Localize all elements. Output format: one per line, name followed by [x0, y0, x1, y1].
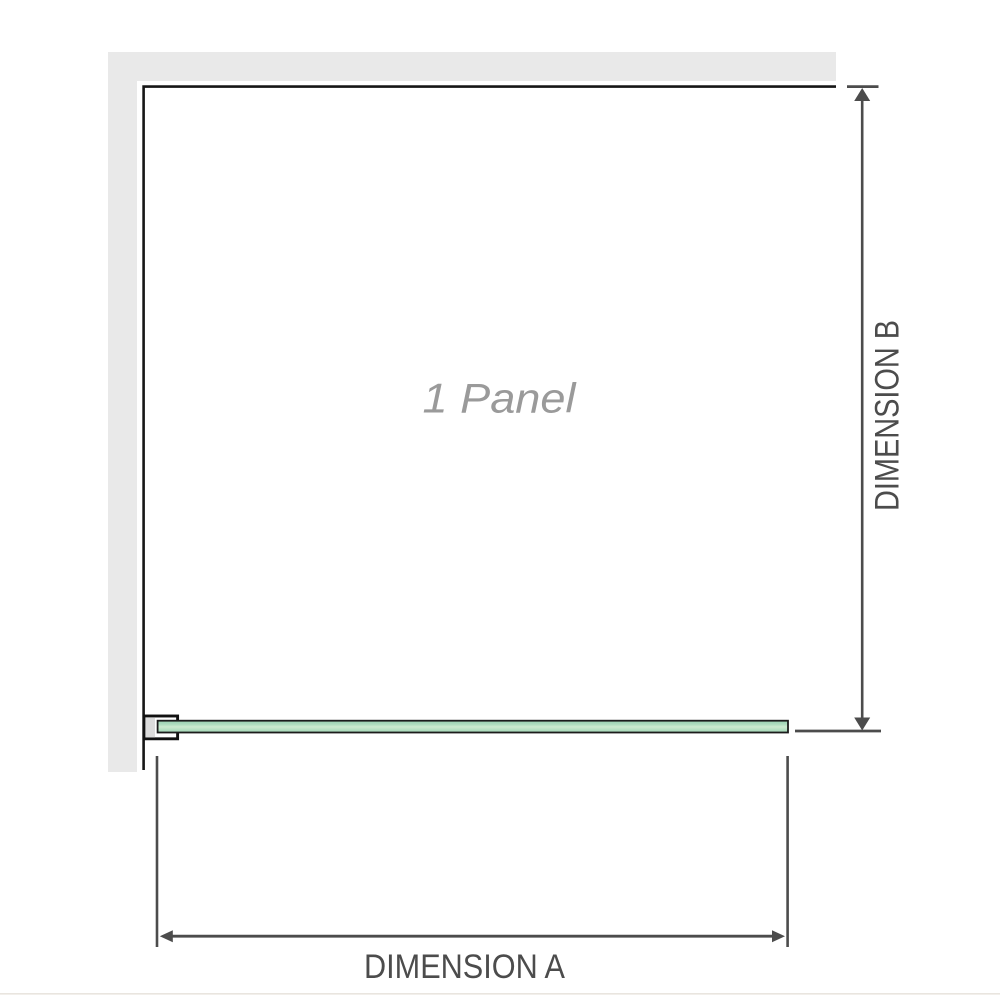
svg-text:1 Panel: 1 Panel [423, 375, 578, 422]
svg-text:DIMENSION B: DIMENSION B [868, 320, 906, 511]
svg-text:DIMENSION A: DIMENSION A [364, 948, 565, 986]
